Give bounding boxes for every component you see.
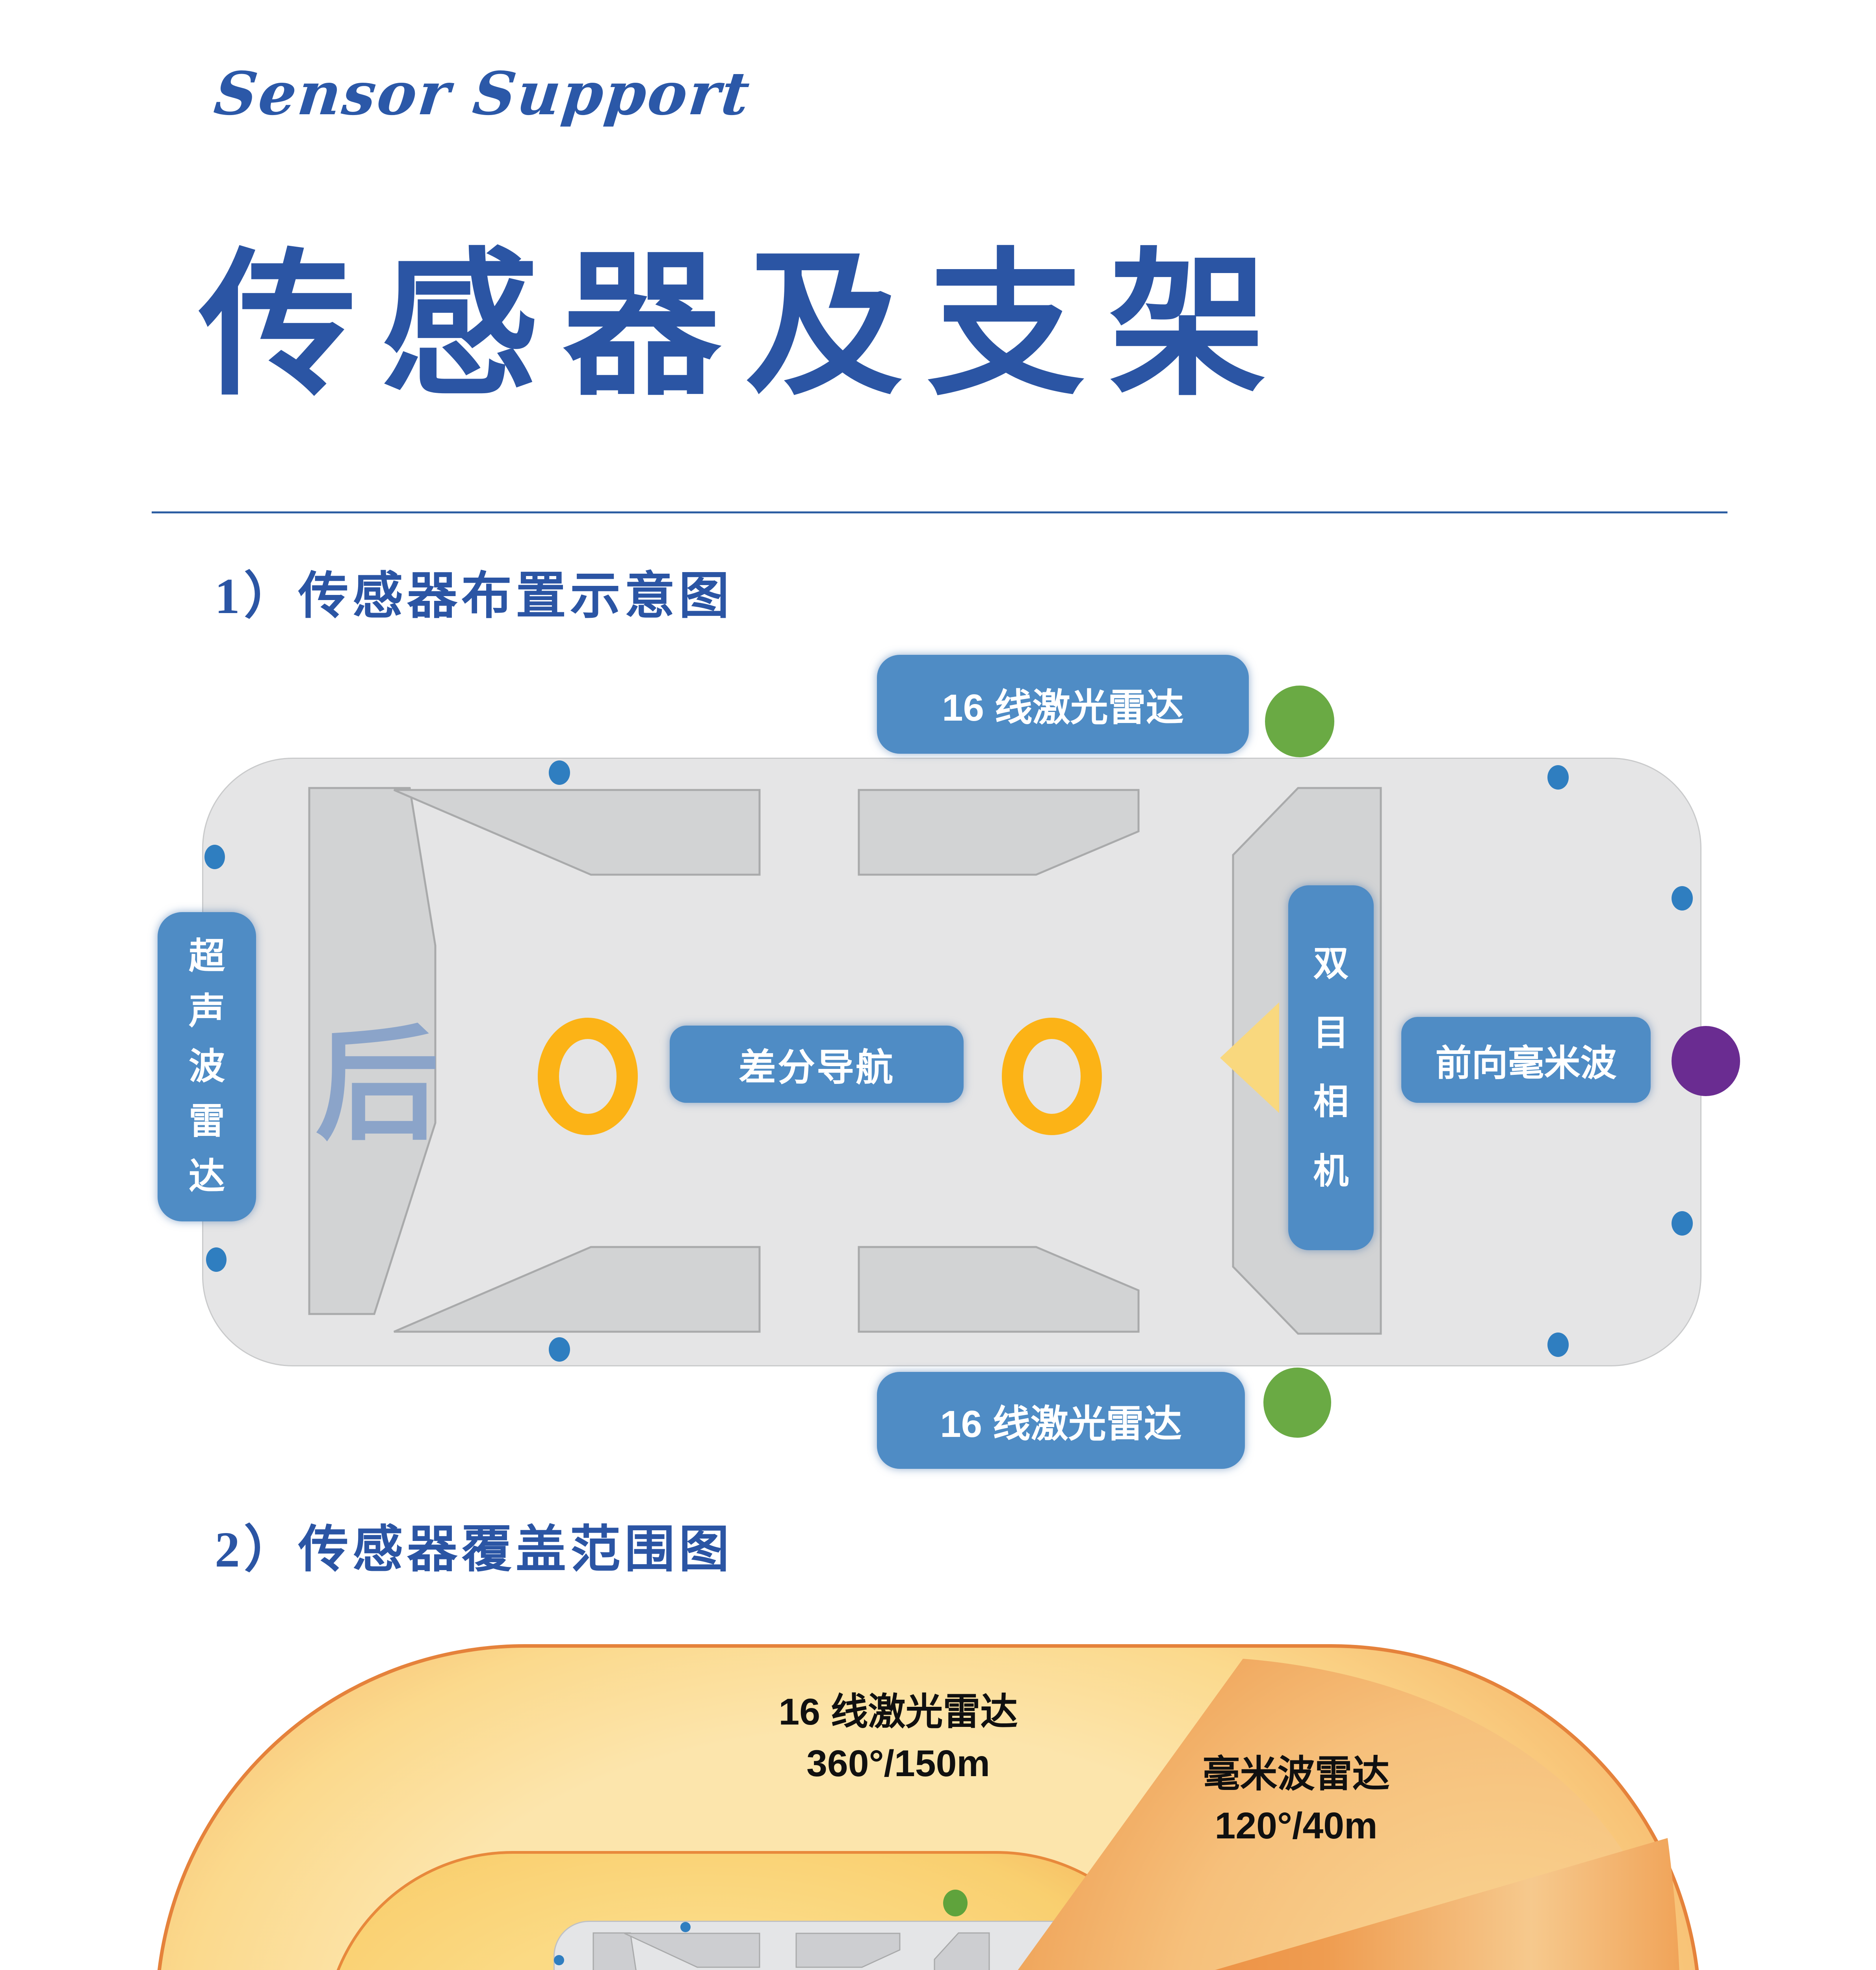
roof-panel-bottom-right — [859, 1247, 1139, 1332]
ultrasonic-radar-label: 超声波雷达 — [158, 912, 256, 1221]
front-mmw-label: 前向毫米波 — [1401, 1017, 1651, 1103]
page-title: 传感器及支架 — [199, 232, 1291, 422]
coverage-label-mmw-top: 毫米波雷达 120°/40m — [1166, 1749, 1426, 1852]
roof-panel-bottom-left — [394, 1247, 760, 1332]
binocular-camera-label: 双目相机 — [1288, 885, 1374, 1250]
diff-navigation-label: 差分导航 — [670, 1026, 964, 1103]
front-mmw-radar-dot — [1672, 1026, 1740, 1096]
manual-page: Sensor Support 传感器及支架 1）传感器布置示意图 后 — [0, 0, 1876, 1970]
divider-line — [152, 511, 1727, 513]
roof-panel-top-right — [859, 790, 1139, 875]
section2-heading: 2）传感器覆盖范围图 — [215, 1508, 733, 1581]
lidar-bottom-label: 16 线激光雷达 — [877, 1372, 1245, 1469]
rear-label: 后 — [315, 1018, 439, 1155]
lidar-top-dot — [1265, 686, 1334, 757]
lidar-bottom-dot — [1263, 1368, 1331, 1438]
mini-lidar-top-dot — [943, 1890, 968, 1916]
roof-panel-top-left — [394, 790, 760, 875]
lidar-top-label: 16 线激光雷达 — [877, 655, 1249, 754]
brand-script-text: Sensor Support — [211, 59, 754, 128]
section1-heading: 1）传感器布置示意图 — [215, 555, 733, 628]
coverage-label-lidar-top: 16 线激光雷达 360°/150m — [745, 1686, 1052, 1790]
